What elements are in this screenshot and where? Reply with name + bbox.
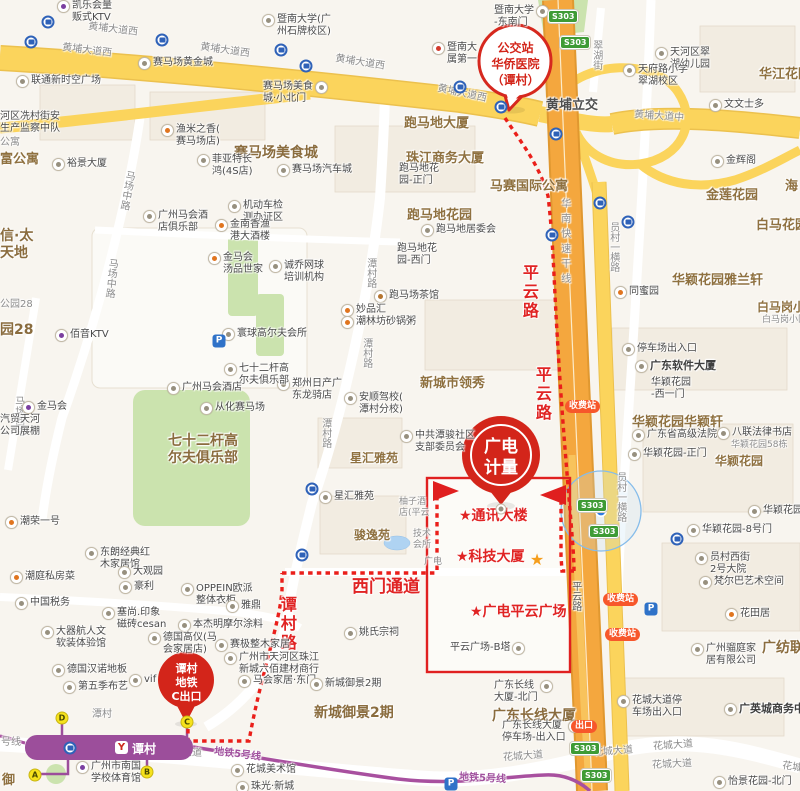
current-location-dot [596,506,606,516]
metro-exit-callout[interactable] [158,652,214,727]
map-canvas[interactable]: 黄埔大道西黄埔大道西黄埔大道西黄埔大道西黄埔大道西黄埔大道中黄埔立交翠湖街华南快… [0,0,800,791]
station-name: 谭村 [132,740,156,757]
pond [384,536,410,550]
metro-station-band[interactable]: Y 谭村 [25,735,193,760]
guangzhou-metro-logo: Y [115,741,128,754]
map-graphics [0,0,800,791]
